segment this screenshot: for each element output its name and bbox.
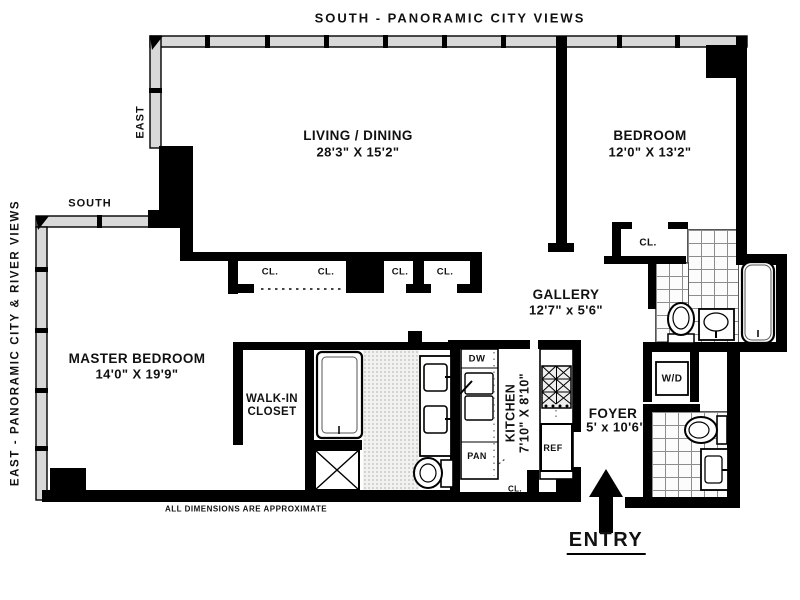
foyer-bath-toilet-tank xyxy=(717,416,727,444)
room-label-kitchen: KITCHEN 7'10" X 8'10" xyxy=(504,373,533,453)
room-dims-bedroom: 12'0" X 13'2" xyxy=(609,146,692,161)
appliance-label-wd: W/D xyxy=(662,373,683,385)
room-label-master-bedroom: MASTER BEDROOM xyxy=(69,351,206,367)
foyer-bath-fixtures xyxy=(685,416,728,490)
label-south: SOUTH xyxy=(68,198,112,211)
room-dims-master-bedroom: 14'0" X 19'9" xyxy=(96,368,179,383)
appliance-label-pan: PAN xyxy=(467,451,487,461)
master-bath-sink-2 xyxy=(424,406,447,433)
appliance-label-ref: REF xyxy=(543,443,562,453)
floor-plan: SOUTH - PANORAMIC CITY VIEWS EAST - PANO… xyxy=(0,0,800,600)
room-label-living-dining: LIVING / DINING xyxy=(303,128,413,144)
exposure-south-title: SOUTH - PANORAMIC CITY VIEWS xyxy=(315,12,586,27)
room-label-walk-in-closet: WALK-IN CLOSET xyxy=(246,393,298,419)
disclaimer-text: ALL DIMENSIONS ARE APPROXIMATE xyxy=(165,504,327,513)
room-dims-gallery: 12'7" x 5'6" xyxy=(529,304,603,319)
closet-label-3: CL. xyxy=(392,268,409,279)
closet-label-bedroom: CL. xyxy=(639,237,656,249)
closet-label-1: CL. xyxy=(262,268,279,279)
room-label-gallery: GALLERY xyxy=(533,287,600,303)
room-label-bedroom: BEDROOM xyxy=(613,128,686,144)
room-dims-foyer: 5' x 10'6" xyxy=(586,421,646,436)
master-bath-sink-1 xyxy=(424,364,447,391)
exposure-east-title: EAST - PANORAMIC CITY & RIVER VIEWS xyxy=(9,200,22,486)
floorplan-drawing xyxy=(0,0,800,600)
master-bath-fixtures xyxy=(315,352,453,490)
closet-label-4: CL. xyxy=(437,268,454,279)
label-east: EAST xyxy=(135,105,148,138)
entry-label: ENTRY xyxy=(567,529,646,555)
appliance-label-dw: DW xyxy=(469,355,486,366)
hall-bath-fixtures xyxy=(668,262,774,343)
entry-arrow-icon xyxy=(589,469,623,533)
closet-label-2: CL. xyxy=(318,268,335,279)
room-dims-living-dining: 28'3" X 15'2" xyxy=(317,146,400,161)
closet-label-kitchen: CL. xyxy=(508,484,522,493)
